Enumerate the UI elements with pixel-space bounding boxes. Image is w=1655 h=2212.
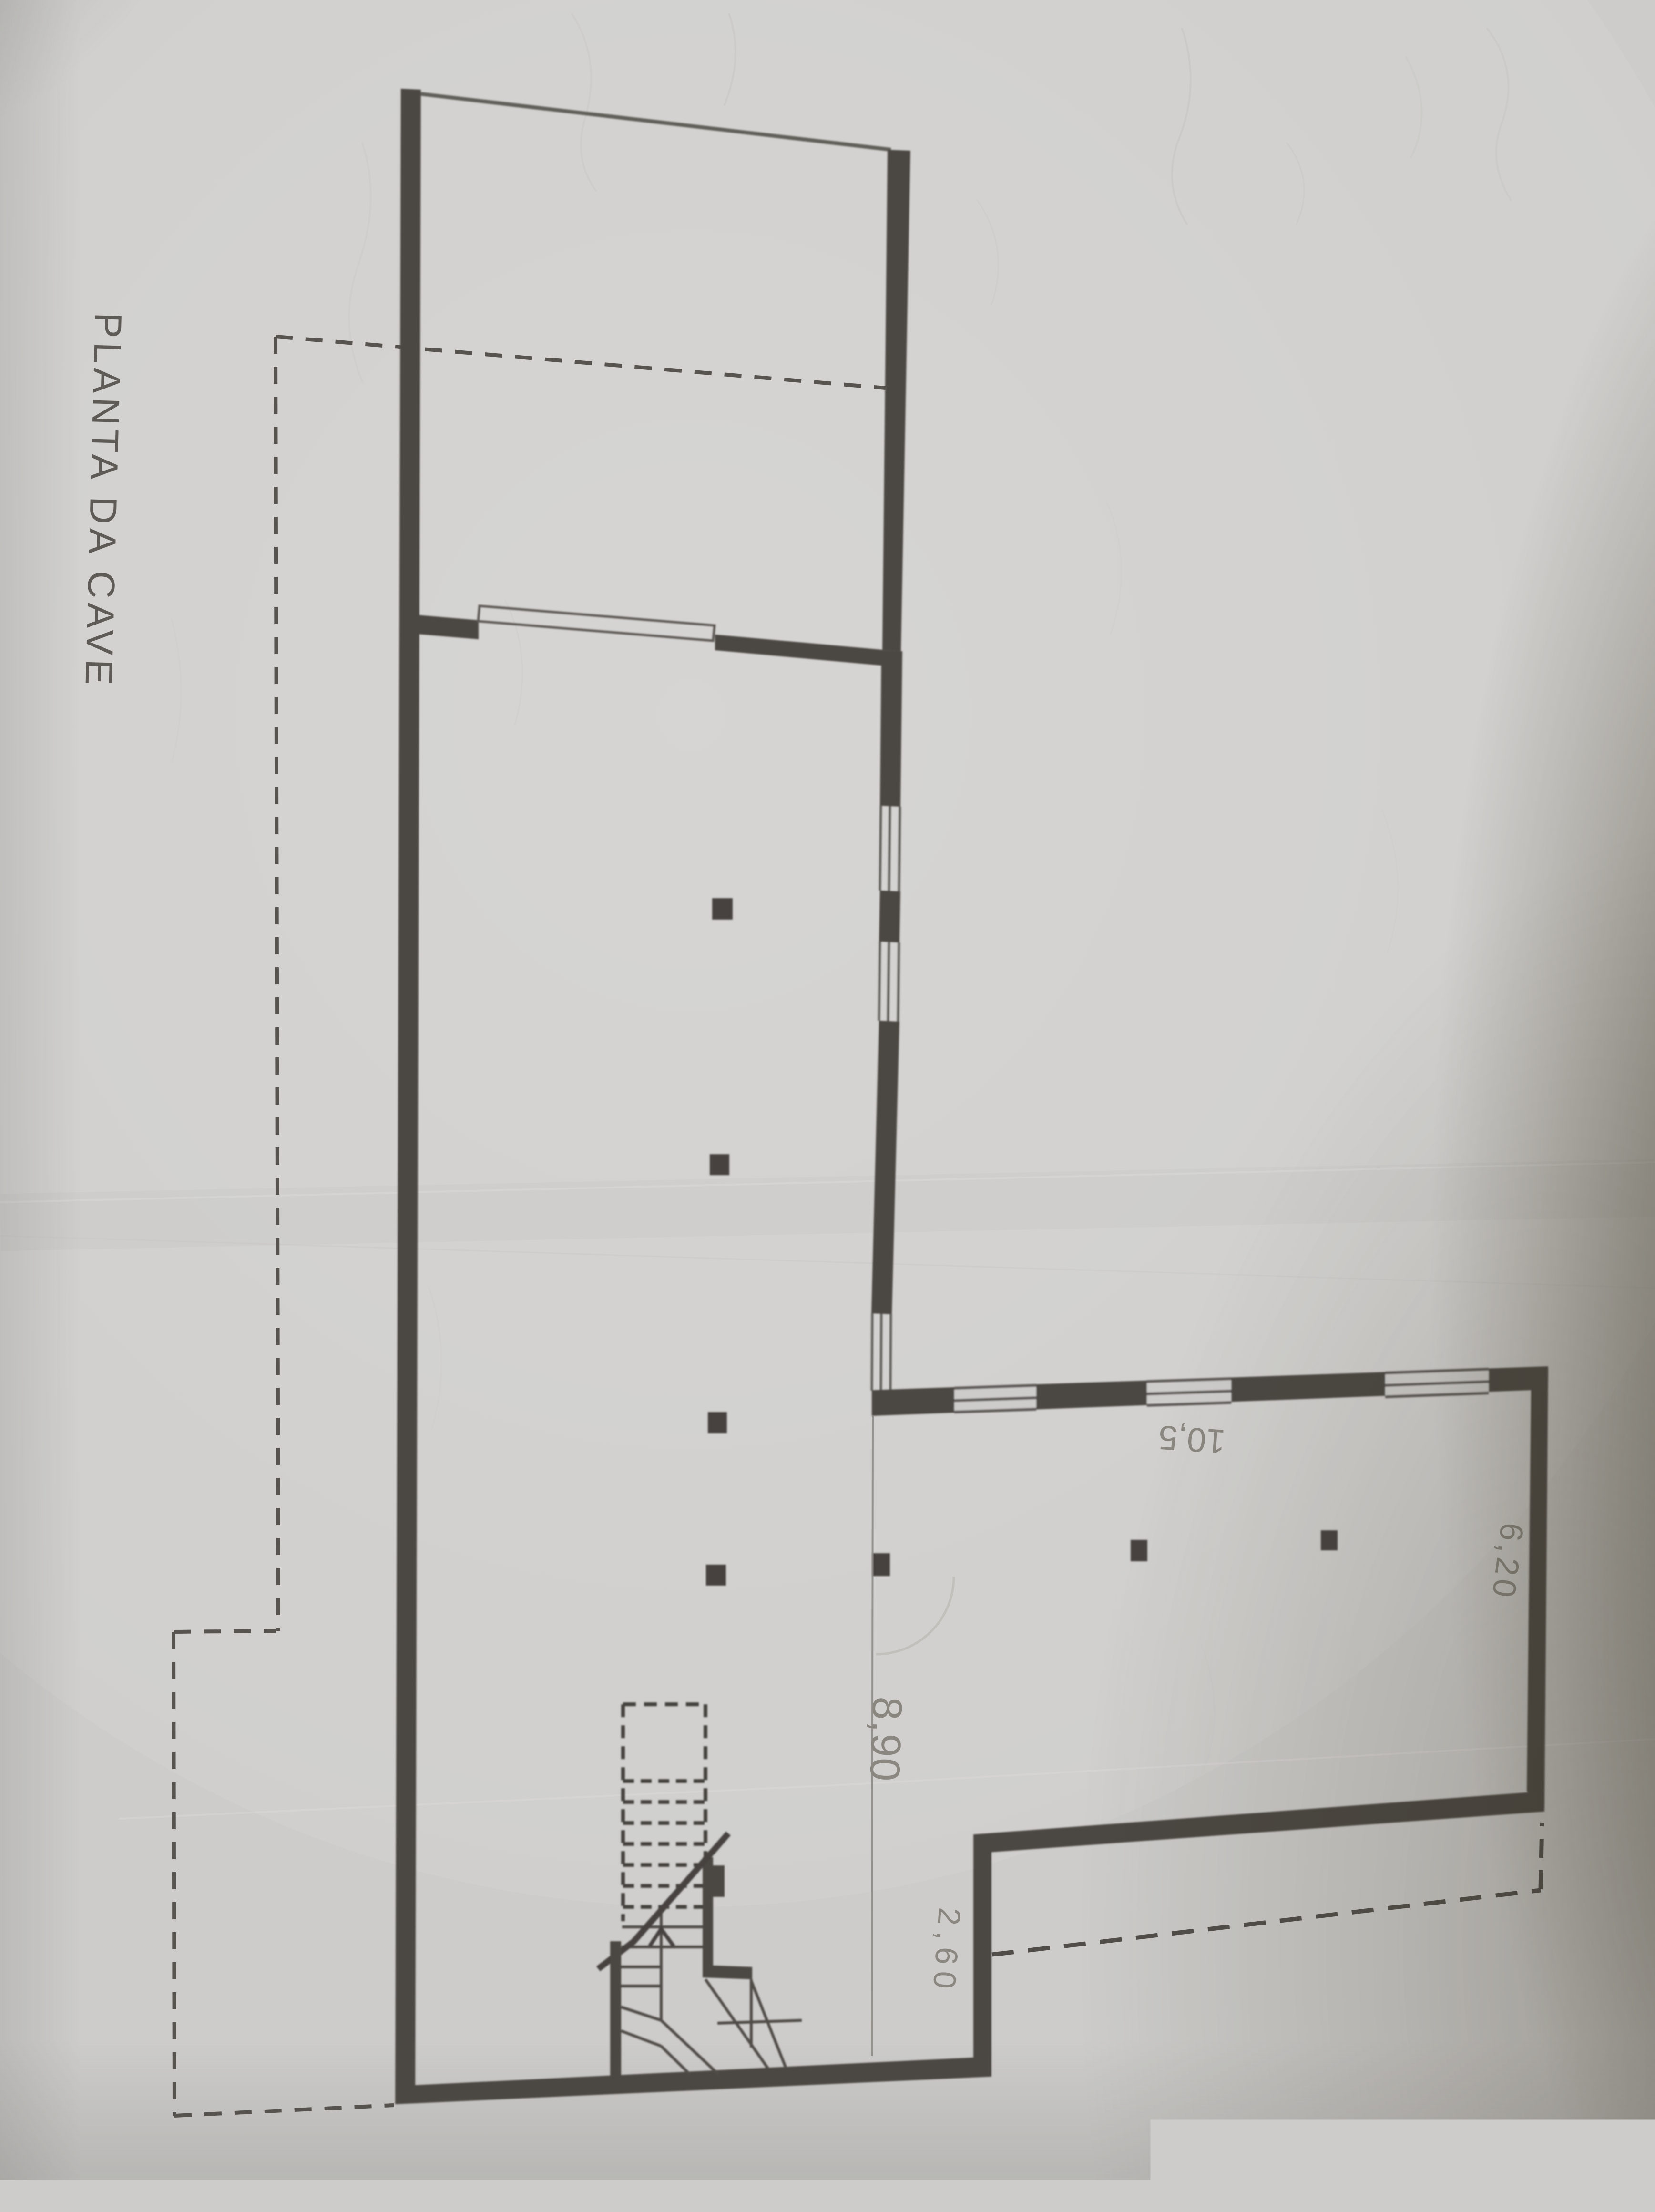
svg-text:8,90: 8,90	[861, 1696, 911, 1783]
svg-text:2,60: 2,60	[926, 1906, 968, 1997]
